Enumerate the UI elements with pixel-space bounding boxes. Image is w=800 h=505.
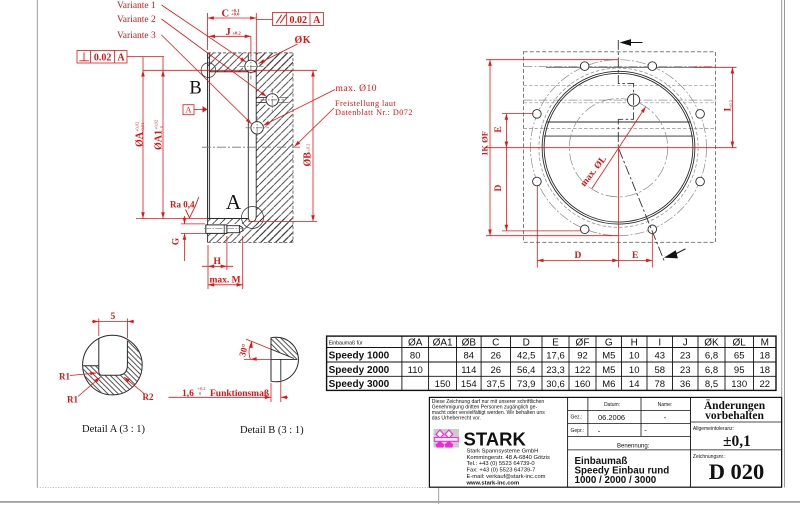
svg-text:A: A bbox=[117, 53, 125, 64]
svg-text:Name:: Name: bbox=[658, 402, 673, 408]
svg-text:J: J bbox=[226, 27, 231, 38]
svg-text:26: 26 bbox=[491, 365, 502, 376]
svg-text:1K ØF: 1K ØF bbox=[480, 131, 490, 156]
svg-text:1,6: 1,6 bbox=[182, 389, 194, 399]
svg-text:Variante 2: Variante 2 bbox=[117, 15, 156, 25]
svg-text:18: 18 bbox=[760, 365, 771, 376]
svg-text:Variante 1: Variante 1 bbox=[117, 1, 156, 11]
svg-text:A: A bbox=[185, 105, 192, 115]
svg-text:0.02: 0.02 bbox=[289, 15, 307, 26]
svg-text:22: 22 bbox=[760, 379, 771, 390]
svg-text:D 020: D 020 bbox=[709, 459, 765, 484]
svg-text:56,4: 56,4 bbox=[517, 365, 536, 376]
svg-text:1000 / 2000 / 3000: 1000 / 2000 / 3000 bbox=[575, 475, 657, 486]
svg-text:ØK: ØK bbox=[704, 337, 719, 348]
svg-text:M: M bbox=[761, 337, 769, 348]
svg-text:18: 18 bbox=[760, 351, 771, 362]
svg-text:D: D bbox=[575, 251, 582, 261]
svg-text:±0,5: ±0,5 bbox=[728, 99, 734, 108]
svg-text:73,9: 73,9 bbox=[517, 379, 536, 390]
svg-text:Ra 0,4: Ra 0,4 bbox=[170, 200, 195, 210]
svg-text:42,5: 42,5 bbox=[517, 351, 536, 362]
svg-text:C: C bbox=[222, 9, 230, 20]
svg-text:E: E bbox=[632, 251, 638, 261]
svg-text:STARK: STARK bbox=[464, 428, 527, 449]
svg-text:6,8: 6,8 bbox=[705, 365, 718, 376]
svg-text:23,3: 23,3 bbox=[546, 365, 565, 376]
svg-text:36: 36 bbox=[680, 379, 691, 390]
svg-text:14: 14 bbox=[629, 379, 640, 390]
svg-text:Stark Spannsysteme GmbH: Stark Spannsysteme GmbH bbox=[467, 448, 539, 454]
svg-text:-0,01: -0,01 bbox=[140, 123, 146, 132]
svg-text:95: 95 bbox=[734, 365, 745, 376]
svg-text:154: 154 bbox=[461, 379, 477, 390]
svg-text:43: 43 bbox=[655, 351, 666, 362]
svg-text:R1: R1 bbox=[59, 372, 70, 382]
svg-text:30,6: 30,6 bbox=[546, 379, 565, 390]
svg-text:E: E bbox=[494, 126, 504, 132]
svg-text:C: C bbox=[492, 337, 499, 348]
svg-text:ØA: ØA bbox=[135, 131, 146, 147]
svg-text:M6: M6 bbox=[602, 379, 615, 390]
svg-text:65: 65 bbox=[734, 351, 745, 362]
svg-text:G: G bbox=[605, 337, 613, 348]
svg-text:Speedy 3000: Speedy 3000 bbox=[329, 379, 390, 390]
svg-text:130: 130 bbox=[731, 379, 747, 390]
svg-text:±0.2: ±0.2 bbox=[233, 31, 242, 36]
svg-text:78: 78 bbox=[655, 379, 666, 390]
svg-text:www.stark-inc.com: www.stark-inc.com bbox=[466, 481, 520, 487]
svg-text:Detail B (3 : 1): Detail B (3 : 1) bbox=[240, 425, 304, 436]
svg-text:114: 114 bbox=[461, 365, 476, 376]
svg-text:Einbaumaß für: Einbaumaß für bbox=[329, 340, 363, 346]
svg-text:H: H bbox=[631, 337, 638, 348]
svg-text:I: I bbox=[658, 337, 661, 348]
svg-text:R1: R1 bbox=[67, 395, 78, 405]
svg-text:Detail A (3 : 1): Detail A (3 : 1) bbox=[82, 424, 145, 435]
svg-text:A: A bbox=[226, 190, 242, 214]
svg-text:±0,1: ±0,1 bbox=[723, 433, 751, 450]
svg-text:84: 84 bbox=[464, 351, 475, 362]
svg-text:Speedy 2000: Speedy 2000 bbox=[329, 365, 390, 376]
svg-text:122: 122 bbox=[575, 365, 591, 376]
svg-text:+0.0: +0.0 bbox=[231, 12, 240, 17]
svg-text:110: 110 bbox=[408, 365, 423, 376]
svg-text:Funktionsmaß: Funktionsmaß bbox=[210, 389, 270, 399]
svg-text:10: 10 bbox=[629, 351, 640, 362]
svg-text:Datum:: Datum: bbox=[604, 402, 620, 408]
svg-text:H: H bbox=[214, 257, 222, 267]
svg-text:A: A bbox=[313, 15, 321, 26]
svg-text:das Urheberrecht vor.: das Urheberrecht vor. bbox=[432, 415, 481, 421]
svg-text:Fax: +43 (0) 5523 64739-7: Fax: +43 (0) 5523 64739-7 bbox=[467, 468, 536, 474]
svg-text:ØL: ØL bbox=[733, 337, 747, 348]
svg-text:10: 10 bbox=[629, 365, 640, 376]
svg-text:R2: R2 bbox=[143, 392, 154, 402]
svg-text:D: D bbox=[523, 337, 530, 348]
svg-text:E: E bbox=[552, 337, 559, 348]
svg-text:Gez.:: Gez.: bbox=[571, 415, 583, 421]
svg-text:5: 5 bbox=[111, 312, 116, 322]
svg-text:Speedy 1000: Speedy 1000 bbox=[329, 351, 390, 362]
svg-text:6,8: 6,8 bbox=[705, 351, 718, 362]
svg-text:D: D bbox=[494, 184, 504, 191]
svg-text:Tel.: +43 (0) 5523 64739-0: Tel.: +43 (0) 5523 64739-0 bbox=[467, 461, 535, 467]
svg-text:23: 23 bbox=[680, 365, 691, 376]
svg-text:ØA1: ØA1 bbox=[433, 337, 453, 348]
svg-text:Allgemeintoleranz:: Allgemeintoleranz: bbox=[693, 426, 734, 432]
svg-text:58: 58 bbox=[655, 365, 666, 376]
svg-text:max. M: max. M bbox=[210, 275, 241, 285]
svg-text:150: 150 bbox=[435, 379, 451, 390]
svg-text:J: J bbox=[683, 337, 688, 348]
svg-text:vorbehalten: vorbehalten bbox=[705, 410, 764, 422]
svg-text:92: 92 bbox=[577, 351, 588, 362]
svg-text:M5: M5 bbox=[602, 365, 615, 376]
svg-text:max. Ø10: max. Ø10 bbox=[336, 84, 377, 94]
svg-text:Variante 3: Variante 3 bbox=[117, 31, 156, 41]
svg-text:Kommingerstr. 48 A-6840 Götzis: Kommingerstr. 48 A-6840 Götzis bbox=[467, 455, 551, 461]
svg-text:ØB: ØB bbox=[303, 152, 314, 167]
svg-text:160: 160 bbox=[575, 379, 591, 390]
svg-text:M5: M5 bbox=[602, 351, 615, 362]
svg-text:Gepr.:: Gepr.: bbox=[571, 428, 585, 434]
svg-text:Benennung:: Benennung: bbox=[617, 443, 650, 449]
svg-text:ØA1: ØA1 bbox=[154, 130, 165, 150]
svg-text:0: 0 bbox=[199, 391, 202, 396]
svg-text:8,5: 8,5 bbox=[705, 379, 718, 390]
svg-text:ØB: ØB bbox=[462, 337, 477, 348]
svg-text:37,5: 37,5 bbox=[487, 379, 506, 390]
svg-text:ØA: ØA bbox=[408, 337, 423, 348]
svg-text:max. ØL: max. ØL bbox=[579, 154, 609, 188]
svg-text:06.2006: 06.2006 bbox=[598, 413, 625, 422]
svg-text:G: G bbox=[172, 237, 182, 245]
svg-text:±0.2: ±0.2 bbox=[306, 144, 311, 152]
svg-text:30°: 30° bbox=[237, 342, 250, 357]
svg-text:Datenblatt Nr.: D072: Datenblatt Nr.: D072 bbox=[335, 108, 413, 117]
svg-text:Freistellung laut: Freistellung laut bbox=[335, 99, 396, 108]
svg-text:17,6: 17,6 bbox=[546, 351, 565, 362]
svg-text:23: 23 bbox=[680, 351, 691, 362]
svg-text:0.02: 0.02 bbox=[94, 53, 112, 64]
svg-text:26: 26 bbox=[491, 351, 502, 362]
svg-text:ØF: ØF bbox=[576, 337, 590, 348]
svg-text:B: B bbox=[189, 79, 201, 99]
svg-text:E-mail: verkauf@stark-inc.com: E-mail: verkauf@stark-inc.com bbox=[467, 474, 546, 480]
svg-text:80: 80 bbox=[410, 351, 421, 362]
